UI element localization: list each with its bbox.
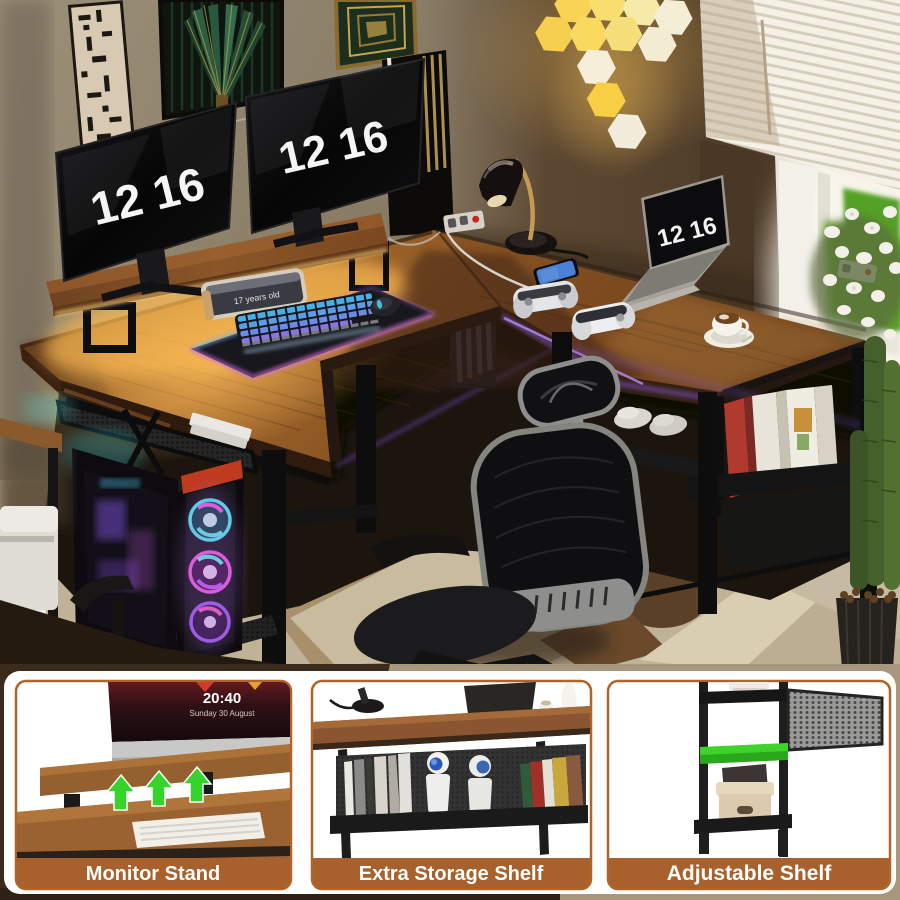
- svg-text:20:40: 20:40: [203, 690, 241, 707]
- svg-text:Sunday 30 August: Sunday 30 August: [190, 709, 256, 718]
- svg-text:Adjustable Shelf: Adjustable Shelf: [667, 862, 833, 885]
- svg-text:Extra Storage Shelf: Extra Storage Shelf: [359, 863, 544, 885]
- svg-text:Monitor Stand: Monitor Stand: [86, 863, 220, 885]
